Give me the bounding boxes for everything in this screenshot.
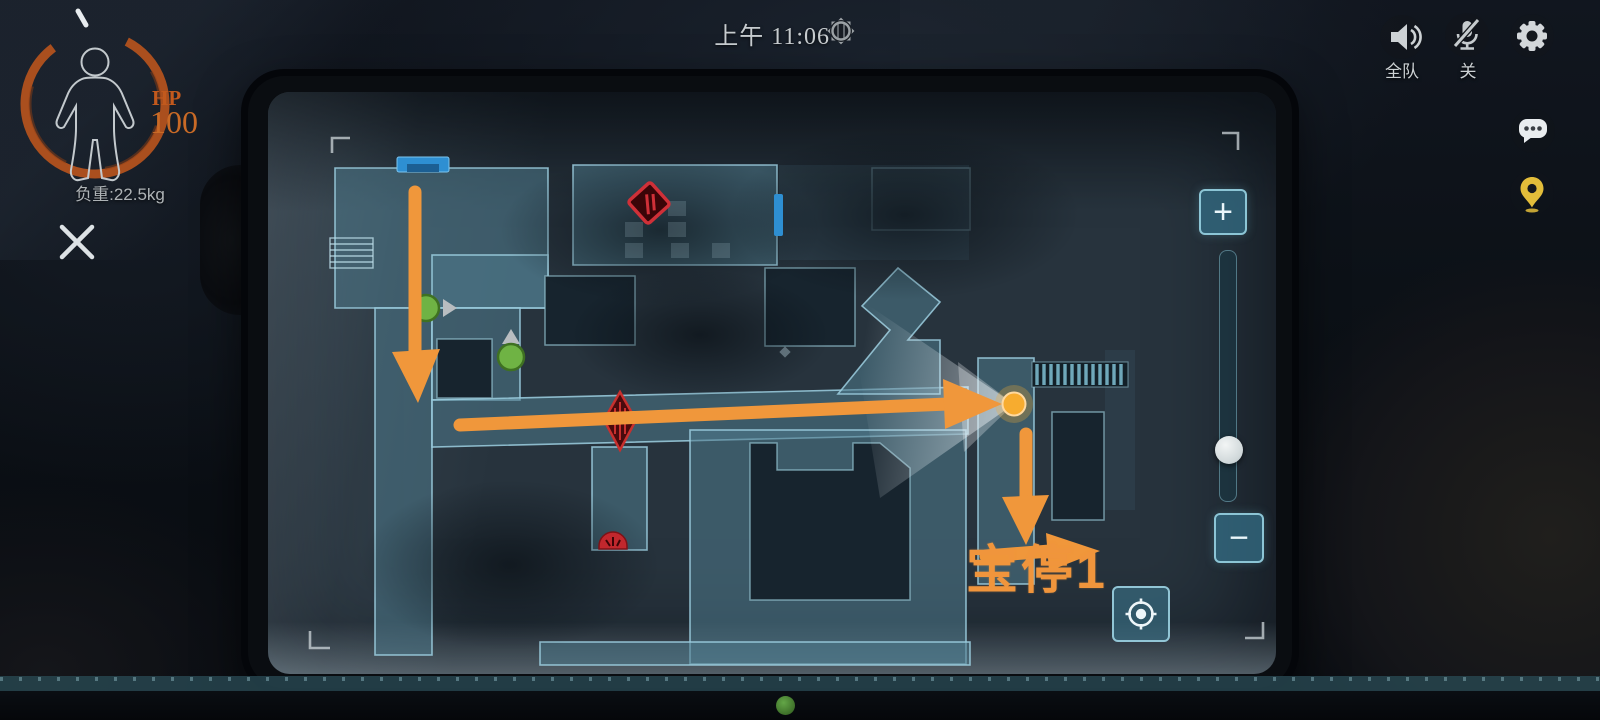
hp-value: 100 xyxy=(150,104,198,141)
voice-speaker-button[interactable] xyxy=(1379,14,1425,60)
speaker-icon xyxy=(1379,14,1425,60)
game-time: 上午 11:06 xyxy=(688,16,830,51)
zoom-out-button[interactable]: − xyxy=(1214,513,1264,563)
map-zoom-slider[interactable] xyxy=(1219,250,1237,502)
settings-button[interactable] xyxy=(1509,13,1555,59)
location-ping-button[interactable] xyxy=(1509,170,1555,216)
screen-shadow xyxy=(268,92,1276,212)
chat-bubble-icon xyxy=(1510,108,1556,154)
chat-button[interactable] xyxy=(1510,108,1556,154)
game-screen: { "hud": { "time": "上午 11:06", "hp_label… xyxy=(0,0,1600,720)
map-zoom-slider-thumb[interactable] xyxy=(1215,436,1243,464)
close-icon xyxy=(52,217,102,267)
voice-channel-label: 全队 xyxy=(1370,57,1434,82)
bottom-dark-area xyxy=(0,691,1600,720)
character-silhouette-icon xyxy=(57,49,134,181)
close-map-button[interactable] xyxy=(52,217,102,267)
mic-muted-icon xyxy=(1444,12,1490,58)
gear-icon xyxy=(1509,13,1555,59)
player-hand-right xyxy=(1270,260,1600,720)
zoom-in-button[interactable]: + xyxy=(1199,189,1247,235)
map-annotation-text: 宝停1 xyxy=(966,528,1108,603)
ring-tick xyxy=(78,11,86,25)
weight-value: 负重:22.5kg xyxy=(55,180,185,205)
microphone-button[interactable] xyxy=(1444,12,1490,58)
location-pin-icon xyxy=(1509,170,1555,216)
recenter-button[interactable] xyxy=(1112,586,1170,642)
mic-state-label: 关 xyxy=(1436,57,1500,82)
crosshair-icon xyxy=(1121,594,1161,634)
sun-daytime-icon xyxy=(820,11,862,53)
table-edge-dashes xyxy=(0,677,1600,681)
voice-activity-dot xyxy=(776,696,795,715)
